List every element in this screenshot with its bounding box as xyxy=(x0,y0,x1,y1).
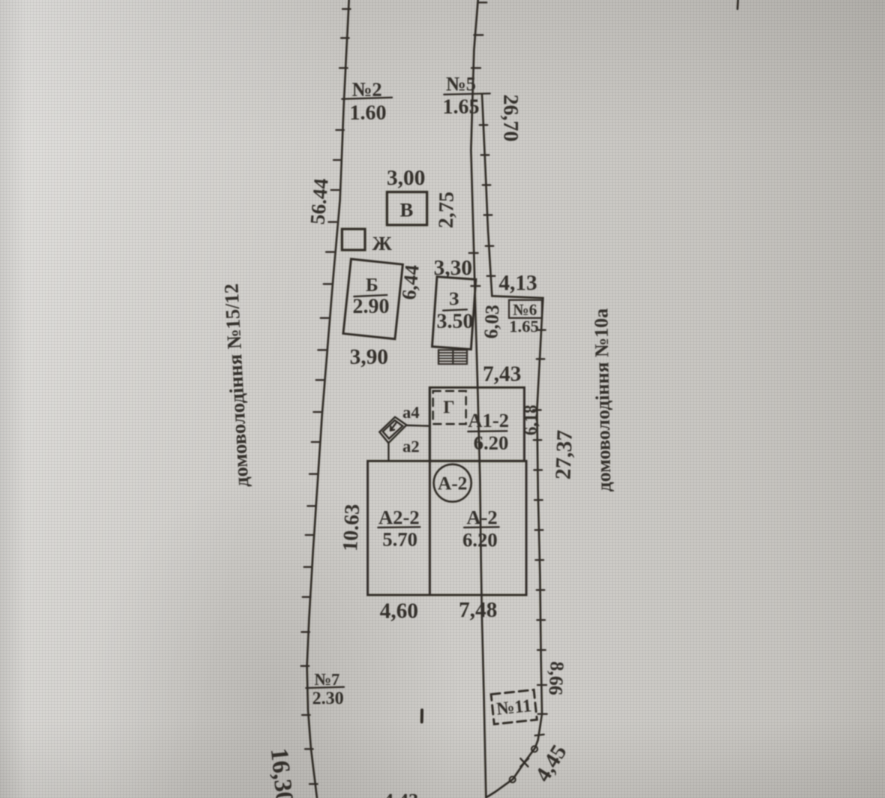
svg-text:56.44: 56.44 xyxy=(307,178,333,226)
svg-text:а4: а4 xyxy=(403,403,421,422)
svg-text:№5: №5 xyxy=(446,74,476,96)
svg-text:1.65: 1.65 xyxy=(443,95,480,119)
svg-text:3,00: 3,00 xyxy=(387,165,426,190)
svg-text:домоволодіння №10а: домоволодіння №10а xyxy=(591,308,615,492)
svg-text:А1-2: А1-2 xyxy=(468,410,509,432)
svg-text:№7: №7 xyxy=(314,670,340,689)
svg-text:16,30: 16,30 xyxy=(265,747,298,798)
svg-text:8,66: 8,66 xyxy=(544,661,567,696)
svg-text:6.20: 6.20 xyxy=(474,433,509,455)
svg-text:а2: а2 xyxy=(403,437,420,456)
svg-text:3,30: 3,30 xyxy=(434,255,473,280)
svg-text:4,60: 4,60 xyxy=(380,598,419,623)
svg-text:6,18: 6,18 xyxy=(521,404,541,435)
svg-text:3.50: 3.50 xyxy=(437,309,474,333)
svg-text:27,37: 27,37 xyxy=(550,430,577,480)
svg-text:3,90: 3,90 xyxy=(350,344,389,369)
svg-text:А2-2: А2-2 xyxy=(378,507,419,529)
svg-text:№11: №11 xyxy=(495,695,532,719)
svg-text:В: В xyxy=(400,200,413,222)
svg-text:4,43: 4,43 xyxy=(384,790,419,798)
svg-text:2.90: 2.90 xyxy=(353,294,390,318)
svg-text:1.60: 1.60 xyxy=(350,101,387,125)
svg-text:З: З xyxy=(449,289,459,310)
svg-text:4,13: 4,13 xyxy=(499,270,538,295)
svg-text:10.63: 10.63 xyxy=(338,503,364,551)
svg-text:6.20: 6.20 xyxy=(463,530,498,552)
svg-text:26,70: 26,70 xyxy=(499,94,523,141)
svg-text:5.70: 5.70 xyxy=(383,529,418,551)
svg-text:6,44: 6,44 xyxy=(398,264,424,301)
svg-text:Ж: Ж xyxy=(372,233,392,255)
svg-text:Б: Б xyxy=(366,275,379,296)
svg-text:7,48: 7,48 xyxy=(459,597,498,622)
svg-text:1.65: 1.65 xyxy=(509,317,539,336)
svg-text:7,43: 7,43 xyxy=(483,361,522,386)
svg-text:2.30: 2.30 xyxy=(312,688,344,708)
svg-text:2,75: 2,75 xyxy=(434,191,459,228)
svg-text:домоволодіння №15/12: домоволодіння №15/12 xyxy=(221,283,254,488)
svg-text:Г: Г xyxy=(443,397,454,417)
svg-text:6,03: 6,03 xyxy=(481,304,504,339)
svg-text:А-2: А-2 xyxy=(466,507,497,529)
svg-text:А-2: А-2 xyxy=(438,474,468,495)
